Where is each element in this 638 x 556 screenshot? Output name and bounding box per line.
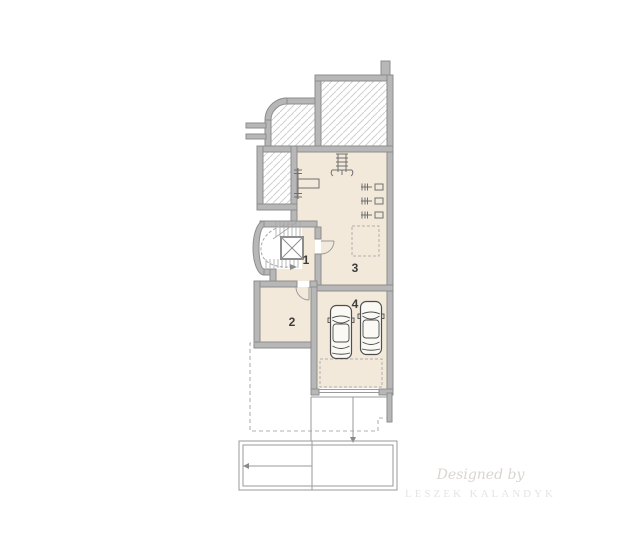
wall-stub <box>246 134 266 139</box>
watermark-name: LESZEK KALANDYK <box>388 488 573 500</box>
hatched-room-top-right <box>321 81 387 146</box>
room-label-4: 4 <box>352 297 359 311</box>
car-icon-2 <box>358 302 384 355</box>
hatched-room-left <box>263 152 291 204</box>
room-label-1: 1 <box>303 253 310 267</box>
slope-arrow-icon-1 <box>350 437 356 443</box>
storage-room-2 <box>260 287 311 342</box>
garage-door-icon <box>319 390 379 393</box>
terrace-outline <box>239 441 397 490</box>
wall-stub <box>246 123 266 128</box>
slope-arrow-icon-2 <box>243 463 249 469</box>
hatched-room-curved <box>271 104 315 146</box>
floor-plan-page: 1 2 3 4 Designed by LESZEK KALANDYK <box>0 0 638 556</box>
watermark: Designed by LESZEK KALANDYK <box>388 467 573 500</box>
room-label-3: 3 <box>352 261 359 275</box>
chimney <box>381 61 390 76</box>
room-label-2: 2 <box>289 315 296 329</box>
driveway-outline <box>311 397 387 443</box>
car-icon-1 <box>328 306 354 359</box>
watermark-script: Designed by <box>388 467 573 483</box>
elevator-icon <box>281 237 303 259</box>
